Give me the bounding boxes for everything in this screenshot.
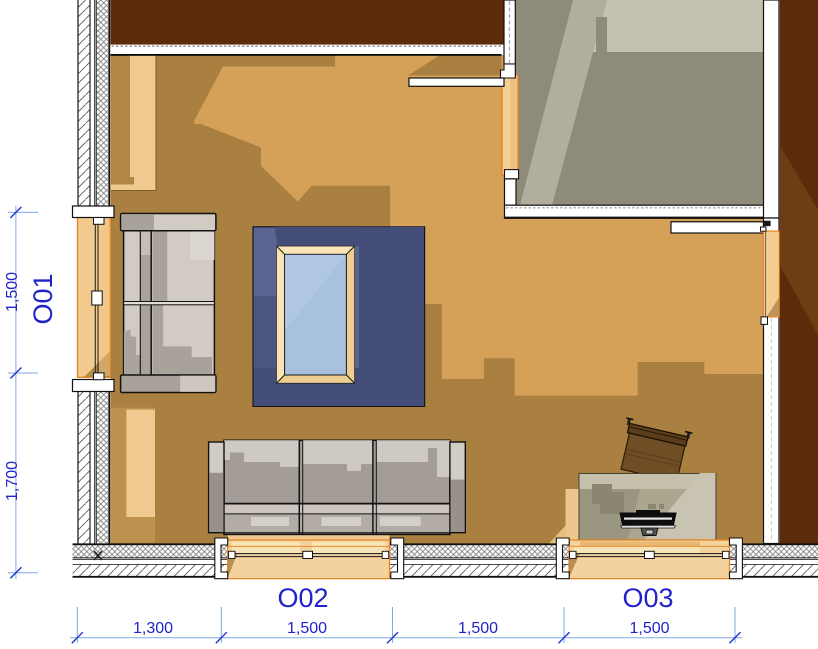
svg-text:1,500: 1,500 bbox=[629, 620, 669, 637]
svg-text:O01: O01 bbox=[28, 273, 58, 324]
svg-text:O03: O03 bbox=[622, 583, 673, 613]
svg-text:1,500: 1,500 bbox=[4, 272, 21, 312]
svg-text:1,300: 1,300 bbox=[133, 620, 173, 637]
svg-text:O02: O02 bbox=[277, 583, 328, 613]
svg-text:1,500: 1,500 bbox=[458, 620, 498, 637]
svg-text:1,700: 1,700 bbox=[4, 461, 21, 501]
svg-text:1,500: 1,500 bbox=[287, 620, 327, 637]
